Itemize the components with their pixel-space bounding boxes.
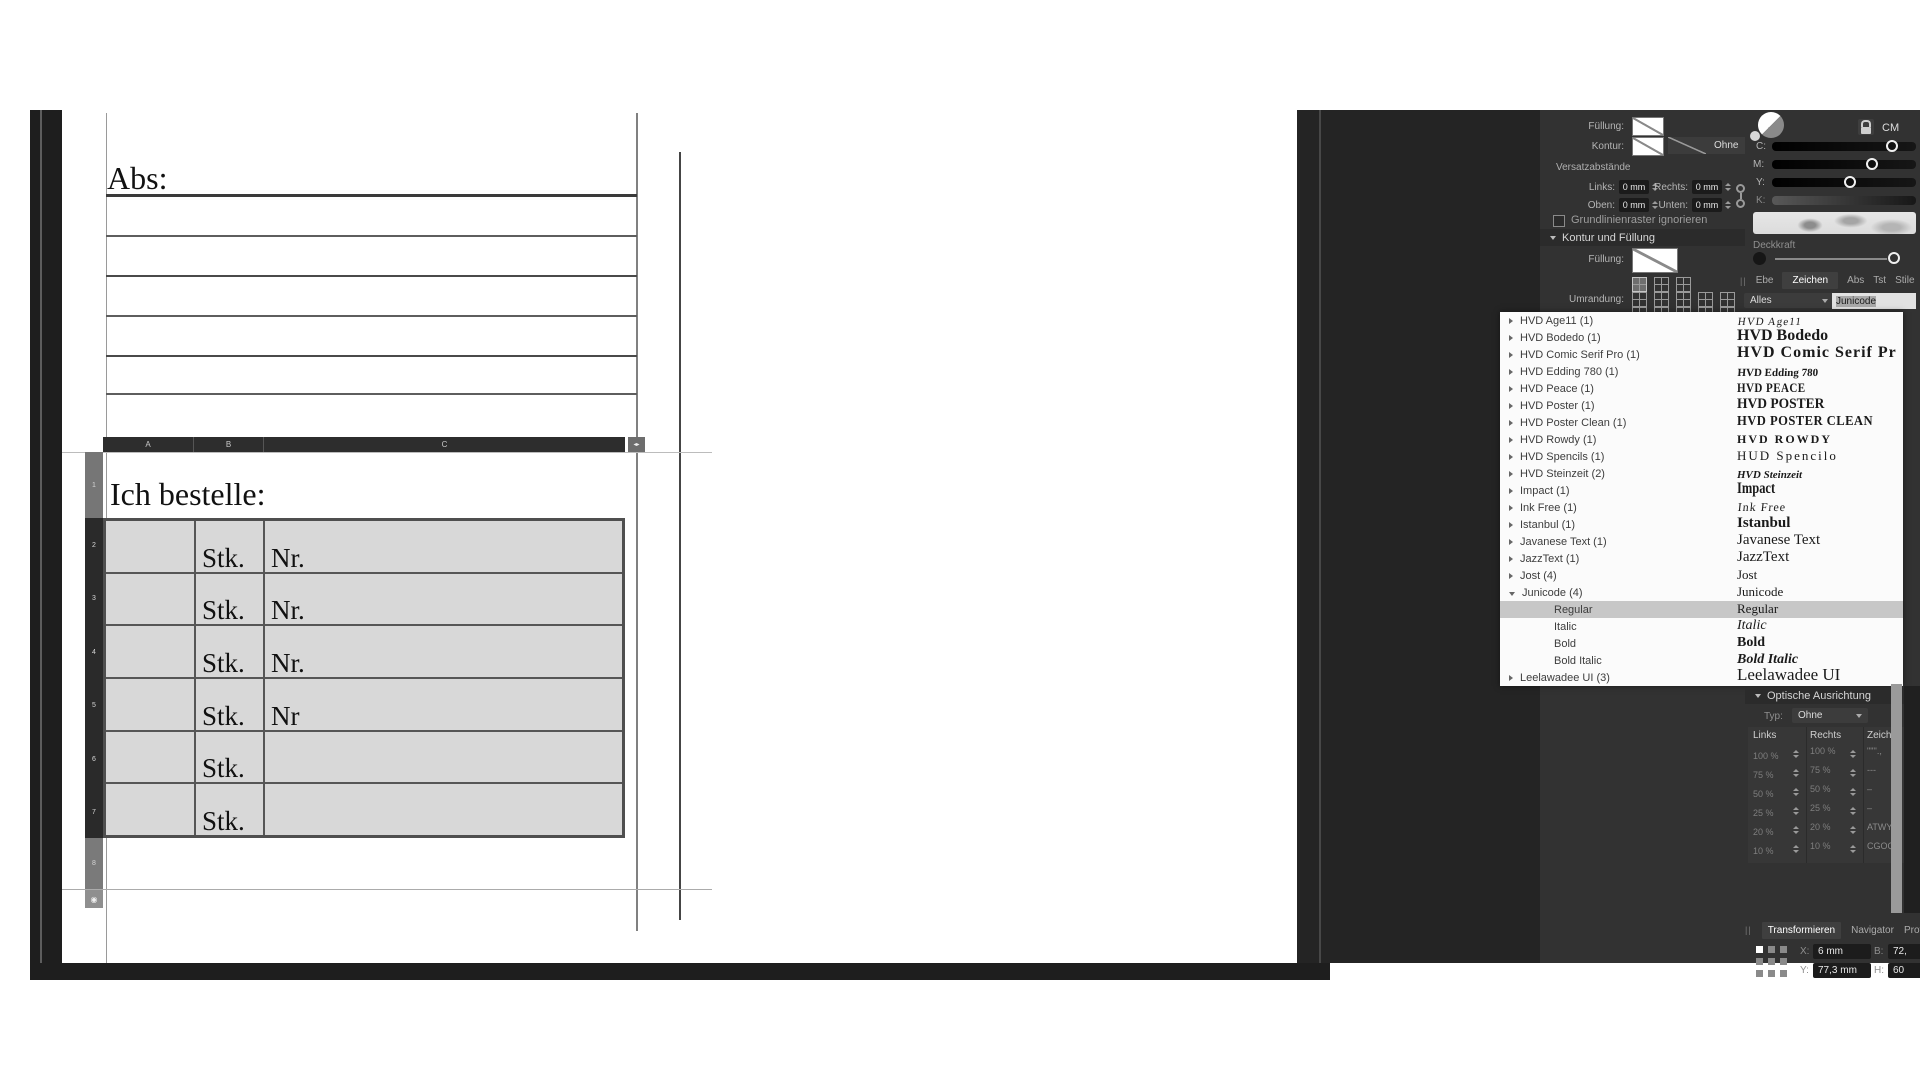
chevron-right-icon[interactable] bbox=[1509, 420, 1513, 426]
font-list-item[interactable]: Ink Free (1)Ink Free bbox=[1500, 499, 1903, 516]
chevron-right-icon[interactable] bbox=[1509, 335, 1513, 341]
app-frame-bottom bbox=[30, 963, 1330, 980]
border-preset-icon[interactable] bbox=[1720, 292, 1735, 307]
tab-zeichen[interactable]: Zeichen bbox=[1782, 272, 1838, 289]
optical-right-value[interactable]: 75 % bbox=[1810, 765, 1831, 775]
font-list-item[interactable]: HVD Age11 (1)HVD Age11 bbox=[1500, 312, 1903, 329]
form-line bbox=[106, 315, 637, 317]
cell-c[interactable]: Nr. bbox=[265, 521, 622, 572]
form-line bbox=[106, 275, 637, 277]
stroke-style-line-icon bbox=[1668, 137, 1706, 154]
offset-top-label: Oben: bbox=[1560, 200, 1615, 211]
stepper[interactable] bbox=[1793, 785, 1799, 799]
chevron-right-icon[interactable] bbox=[1509, 556, 1513, 562]
stroke-style-value: Ohne bbox=[1714, 140, 1738, 151]
order-table[interactable]: Stk. Nr. Stk. Nr. Stk. Nr. Stk. Nr Stk. … bbox=[103, 518, 625, 838]
table-row[interactable]: Stk. Nr bbox=[106, 677, 622, 730]
form-line bbox=[106, 355, 637, 357]
optical-right-value[interactable]: 25 % bbox=[1810, 803, 1831, 813]
font-preview: HUD Spencilo bbox=[1737, 448, 1838, 464]
color-dot-icon[interactable] bbox=[1750, 131, 1760, 141]
row-header-7[interactable]: 7 bbox=[85, 786, 103, 838]
font-preview: HVD Edding 780 bbox=[1737, 367, 1819, 379]
chevron-right-icon[interactable] bbox=[1509, 403, 1513, 409]
black-slider[interactable] bbox=[1772, 196, 1916, 205]
table-row[interactable]: Stk. bbox=[106, 782, 622, 835]
optical-chars: ATWY bbox=[1867, 822, 1892, 832]
font-list-panel[interactable]: HVD Age11 (1)HVD Age11 HVD Bodedo (1)HVD… bbox=[1500, 312, 1903, 686]
optical-col-header-rechts: Rechts bbox=[1810, 730, 1841, 741]
panel-scrollbar[interactable] bbox=[1891, 684, 1902, 913]
stepper[interactable] bbox=[1850, 785, 1856, 799]
panel-grip-icon[interactable]: || bbox=[1740, 276, 1747, 286]
app-frame-left bbox=[30, 110, 62, 963]
chevron-right-icon[interactable] bbox=[1509, 369, 1513, 375]
cell-b[interactable]: Stk. bbox=[196, 574, 265, 625]
chevron-down-icon bbox=[1550, 236, 1556, 240]
optical-type-dropdown[interactable]: Ohne bbox=[1792, 708, 1868, 723]
table-row[interactable]: Stk. Nr. bbox=[106, 521, 622, 572]
optical-left-value[interactable]: 100 % bbox=[1753, 751, 1779, 761]
baseline-grid-checkbox[interactable] bbox=[1553, 215, 1565, 227]
row-header-8[interactable]: 8 bbox=[85, 838, 103, 889]
order-label[interactable]: Ich bestelle: bbox=[110, 476, 265, 513]
chevron-right-icon[interactable] bbox=[1509, 437, 1513, 443]
form-underline bbox=[106, 194, 637, 197]
font-preview: HVD Comic Serif Pr bbox=[1737, 344, 1897, 362]
stepper[interactable] bbox=[1850, 823, 1856, 837]
stepper[interactable] bbox=[1850, 804, 1856, 818]
font-list-item[interactable]: HVD Poster (1)HVD POSTER bbox=[1500, 397, 1903, 414]
chevron-right-icon[interactable] bbox=[1509, 505, 1513, 511]
optical-right-value[interactable]: 10 % bbox=[1810, 841, 1831, 851]
table-row[interactable]: Stk. bbox=[106, 730, 622, 783]
border-preset-row2 bbox=[1632, 292, 1735, 307]
table-resize-handle-icon[interactable]: ◂▸ bbox=[628, 437, 645, 452]
width-label: B: bbox=[1874, 946, 1883, 957]
font-list-item-junicode[interactable]: Junicode (4)Junicode bbox=[1500, 584, 1903, 601]
panel-grip-icon[interactable]: || bbox=[1745, 925, 1752, 935]
font-list-item[interactable]: Jost (4)Jost bbox=[1500, 567, 1903, 584]
font-search-input[interactable]: Junicode bbox=[1832, 293, 1916, 309]
font-list-item[interactable]: Leelawadee UI (3)Leelawadee UI bbox=[1500, 669, 1903, 686]
abs-label: Abs: bbox=[107, 160, 167, 197]
optical-right-value[interactable]: 50 % bbox=[1810, 784, 1831, 794]
magenta-handle[interactable] bbox=[1866, 158, 1878, 170]
cell-b[interactable]: Stk. bbox=[196, 626, 265, 677]
opacity-handle[interactable] bbox=[1888, 252, 1900, 264]
chevron-down-icon bbox=[1755, 694, 1761, 698]
font-list-item[interactable]: HVD Peace (1)HVD PEACE bbox=[1500, 380, 1903, 397]
cell-a[interactable] bbox=[106, 626, 196, 677]
optical-right-value[interactable]: 20 % bbox=[1810, 822, 1831, 832]
optical-left-value[interactable]: 25 % bbox=[1753, 808, 1774, 818]
table-row[interactable]: Stk. Nr. bbox=[106, 624, 622, 677]
chevron-right-icon[interactable] bbox=[1509, 675, 1513, 681]
font-list-item[interactable]: HVD Comic Serif Pro (1)HVD Comic Serif P… bbox=[1500, 346, 1903, 363]
font-preview: HVD PEACE bbox=[1737, 380, 1806, 396]
offset-bottom-stepper[interactable] bbox=[1725, 198, 1731, 212]
form-line bbox=[106, 393, 637, 395]
chevron-right-icon[interactable] bbox=[1509, 386, 1513, 392]
height-input[interactable]: 60 bbox=[1888, 963, 1920, 978]
tab-ebenen[interactable]: Ebe bbox=[1756, 275, 1774, 286]
optical-left-value[interactable]: 50 % bbox=[1753, 789, 1774, 799]
opacity-track[interactable] bbox=[1775, 258, 1887, 260]
font-preview: Regular bbox=[1737, 601, 1778, 617]
optical-chars: – bbox=[1867, 803, 1872, 813]
stepper[interactable] bbox=[1793, 823, 1799, 837]
chevron-right-icon[interactable] bbox=[1509, 539, 1513, 545]
stepper[interactable] bbox=[1793, 804, 1799, 818]
border-preset-icon[interactable] bbox=[1676, 292, 1691, 307]
cell-a[interactable] bbox=[106, 574, 196, 625]
fill-label: Füllung: bbox=[1556, 121, 1624, 132]
cell-a[interactable] bbox=[106, 521, 196, 572]
section-header-kontur-fuellung[interactable]: Kontur und Füllung bbox=[1540, 229, 1745, 246]
border-preset-row bbox=[1632, 277, 1691, 292]
font-style-item-bold-italic[interactable]: Bold ItalicBold Italic bbox=[1500, 652, 1903, 669]
font-list-item[interactable]: Impact (1)Impact bbox=[1500, 482, 1903, 499]
optical-col-header-links: Links bbox=[1753, 730, 1776, 741]
column-header-a[interactable]: A bbox=[103, 437, 194, 452]
y-label: Y: bbox=[1800, 965, 1809, 976]
chevron-right-icon[interactable] bbox=[1509, 454, 1513, 460]
guide-table-bottom bbox=[62, 889, 712, 890]
stepper[interactable] bbox=[1850, 842, 1856, 856]
border-preset-icon[interactable] bbox=[1654, 292, 1669, 307]
chevron-right-icon[interactable] bbox=[1509, 318, 1513, 324]
y-input[interactable]: 77,3 mm bbox=[1813, 963, 1871, 978]
transform-tab-strip: || Transformieren Navigator Protoko bbox=[1745, 920, 1920, 940]
font-preview: Jost bbox=[1737, 567, 1757, 583]
font-preview: Junicode bbox=[1737, 584, 1783, 600]
row-add-handle[interactable]: ◉ bbox=[85, 890, 103, 908]
font-preview: Ink Free bbox=[1737, 500, 1787, 515]
cell-b[interactable]: Stk. bbox=[196, 521, 265, 572]
x-label: X: bbox=[1800, 946, 1809, 957]
optical-chars: – bbox=[1867, 784, 1872, 794]
font-list-item[interactable]: HVD Spencils (1)HUD Spencilo bbox=[1500, 448, 1903, 465]
chevron-right-icon[interactable] bbox=[1509, 573, 1513, 579]
cell-c[interactable]: Nr. bbox=[265, 574, 622, 625]
stepper[interactable] bbox=[1793, 842, 1799, 856]
optical-right-value[interactable]: 100 % bbox=[1810, 746, 1836, 756]
font-style-item-italic[interactable]: ItalicItalic bbox=[1500, 618, 1903, 635]
chevron-down-icon bbox=[1856, 714, 1862, 718]
row-header-3[interactable]: 3 bbox=[85, 572, 103, 625]
stepper[interactable] bbox=[1793, 747, 1799, 761]
chevron-down-icon bbox=[1822, 299, 1828, 303]
border-preset-icon[interactable] bbox=[1632, 277, 1647, 292]
chevron-right-icon[interactable] bbox=[1509, 352, 1513, 358]
cyan-handle[interactable] bbox=[1886, 140, 1898, 152]
fill2-none-swatch[interactable] bbox=[1632, 248, 1678, 273]
font-preview: HVD POSTER bbox=[1737, 396, 1824, 413]
offset-right-label: Rechts: bbox=[1640, 182, 1688, 193]
stroke-label: Kontur: bbox=[1556, 141, 1624, 152]
cell-b[interactable]: Stk. bbox=[196, 679, 265, 730]
stepper[interactable] bbox=[1850, 747, 1856, 761]
lock-icon[interactable] bbox=[1858, 119, 1874, 135]
row-header-5[interactable]: 5 bbox=[85, 679, 103, 732]
cell-a[interactable] bbox=[106, 784, 196, 835]
tab-transformieren[interactable]: Transformieren bbox=[1762, 922, 1841, 939]
border-preset-icon[interactable] bbox=[1654, 277, 1669, 292]
font-preview: JazzText bbox=[1737, 549, 1789, 566]
opacity-knob-icon bbox=[1753, 252, 1766, 265]
font-preview: Impact bbox=[1737, 480, 1775, 498]
fill-none-swatch[interactable] bbox=[1632, 117, 1664, 136]
optical-left-value[interactable]: 20 % bbox=[1753, 827, 1774, 837]
chevron-right-icon[interactable] bbox=[1509, 522, 1513, 528]
form-line bbox=[106, 235, 637, 237]
cell-b[interactable]: Stk. bbox=[196, 732, 265, 783]
anchor-point-selector[interactable] bbox=[1756, 946, 1787, 977]
border-preset-icon[interactable] bbox=[1632, 292, 1647, 307]
font-preview: Leelawadee UI bbox=[1737, 665, 1840, 685]
offset-right-stepper[interactable] bbox=[1725, 180, 1731, 194]
font-preview: Javanese Text bbox=[1737, 532, 1820, 549]
offsets-title: Versatzabstände bbox=[1556, 162, 1631, 173]
magenta-slider[interactable] bbox=[1772, 160, 1916, 169]
font-list-item[interactable]: HVD Steinzeit (2)HVD Steinzeit bbox=[1500, 465, 1903, 482]
stroke-style-dropdown[interactable]: Ohne bbox=[1668, 137, 1745, 154]
font-style-item-bold[interactable]: BoldBold bbox=[1500, 635, 1903, 652]
link-offsets-icon[interactable] bbox=[1736, 184, 1745, 208]
offset-right-input[interactable]: 0 mm bbox=[1692, 180, 1722, 194]
optical-left-value[interactable]: 75 % bbox=[1753, 770, 1774, 780]
font-list-item[interactable]: Istanbul (1)Istanbul bbox=[1500, 516, 1903, 533]
optical-type-label: Typ: bbox=[1764, 711, 1783, 722]
font-preview: Bold bbox=[1737, 635, 1765, 651]
stroke-none-swatch[interactable] bbox=[1632, 137, 1664, 156]
stepper[interactable] bbox=[1793, 766, 1799, 780]
row-header-4[interactable]: 4 bbox=[85, 625, 103, 679]
magenta-label: M: bbox=[1753, 159, 1764, 170]
column-header-b[interactable]: B bbox=[194, 437, 264, 452]
font-style-item-regular[interactable]: RegularRegular bbox=[1500, 601, 1903, 618]
border-preset-icon[interactable] bbox=[1676, 277, 1691, 292]
cell-a[interactable] bbox=[106, 732, 196, 783]
offset-bottom-label: Unten: bbox=[1640, 200, 1688, 211]
chevron-down-icon[interactable] bbox=[1509, 592, 1515, 596]
column-header-c[interactable]: C bbox=[264, 437, 625, 452]
font-list-item[interactable]: JazzText (1)JazzText bbox=[1500, 550, 1903, 567]
row-header-2[interactable]: 2 bbox=[85, 518, 103, 572]
font-list-item[interactable]: Javanese Text (1)Javanese Text bbox=[1500, 533, 1903, 550]
border-label: Umrandung: bbox=[1548, 294, 1624, 305]
yellow-handle[interactable] bbox=[1844, 176, 1856, 188]
chevron-right-icon[interactable] bbox=[1509, 488, 1513, 494]
offset-bottom-input[interactable]: 0 mm bbox=[1692, 198, 1722, 212]
x-input[interactable]: 6 mm bbox=[1813, 944, 1871, 959]
app-window: Abs: A B C ◂▸ 1 2 3 4 5 6 7 8 ◉ Ich best… bbox=[0, 0, 1920, 1080]
cell-a[interactable] bbox=[106, 679, 196, 730]
color-wheel-icon[interactable] bbox=[1758, 112, 1784, 138]
font-preview: HVD Bodedo bbox=[1737, 327, 1828, 345]
cell-b[interactable]: Stk. bbox=[196, 784, 265, 835]
row-header-1[interactable]: 1 bbox=[85, 452, 103, 518]
tab-protokoll[interactable]: Protoko bbox=[1904, 925, 1920, 936]
guide-row1-top bbox=[62, 452, 712, 453]
optical-chars: ""''., bbox=[1867, 746, 1882, 756]
gradient-preview[interactable] bbox=[1753, 212, 1916, 234]
font-list-item[interactable]: HVD Rowdy (1)HVD ROWDY bbox=[1500, 431, 1903, 448]
cell-c[interactable]: Nr bbox=[265, 679, 622, 730]
tab-tst[interactable]: Tst bbox=[1873, 275, 1886, 286]
table-row[interactable]: Stk. Nr. bbox=[106, 572, 622, 625]
panel-tab-strip: || Ebe Zeichen Abs Tst Stile Fid bbox=[1740, 271, 1920, 290]
fill2-label: Füllung: bbox=[1556, 254, 1624, 265]
black-label: K: bbox=[1756, 195, 1765, 206]
tab-absatz[interactable]: Abs bbox=[1847, 275, 1864, 286]
cell-c[interactable] bbox=[265, 784, 622, 835]
optical-left-value[interactable]: 10 % bbox=[1753, 846, 1774, 856]
font-preview: Istanbul bbox=[1737, 515, 1790, 532]
border-preset-icon[interactable] bbox=[1698, 292, 1713, 307]
table-column-header-bar[interactable]: A B C bbox=[103, 437, 625, 452]
width-input[interactable]: 72, bbox=[1888, 944, 1920, 959]
stepper[interactable] bbox=[1850, 766, 1856, 780]
row-header-6[interactable]: 6 bbox=[85, 732, 103, 786]
font-preview: Italic bbox=[1737, 618, 1767, 634]
offset-left-label: Links: bbox=[1560, 182, 1615, 193]
cell-c[interactable]: Nr. bbox=[265, 626, 622, 677]
chevron-right-icon[interactable] bbox=[1509, 471, 1513, 477]
font-list-item[interactable]: HVD Poster Clean (1)HVD POSTER CLEAN bbox=[1500, 414, 1903, 431]
tab-stile[interactable]: Stile bbox=[1895, 275, 1914, 286]
font-preview: HVD ROWDY bbox=[1737, 432, 1832, 447]
text-frame-edge-tall bbox=[679, 152, 681, 920]
panel-right-gutter bbox=[1904, 686, 1920, 913]
baseline-grid-label: Grundlinienraster ignorieren bbox=[1571, 214, 1707, 226]
optical-chars: --- bbox=[1867, 765, 1876, 775]
yellow-label: Y: bbox=[1756, 177, 1765, 188]
font-preview: HVD POSTER CLEAN bbox=[1737, 414, 1873, 430]
color-mode-label[interactable]: CM bbox=[1882, 122, 1899, 134]
height-label: H: bbox=[1874, 965, 1884, 976]
font-list-item[interactable]: HVD Edding 780 (1)HVD Edding 780 bbox=[1500, 363, 1903, 380]
cell-c[interactable] bbox=[265, 732, 622, 783]
tab-navigator[interactable]: Navigator bbox=[1851, 925, 1894, 936]
cyan-label: C: bbox=[1756, 141, 1766, 152]
font-filter-dropdown[interactable]: Alles bbox=[1744, 293, 1834, 308]
opacity-label: Deckkraft bbox=[1753, 240, 1795, 251]
